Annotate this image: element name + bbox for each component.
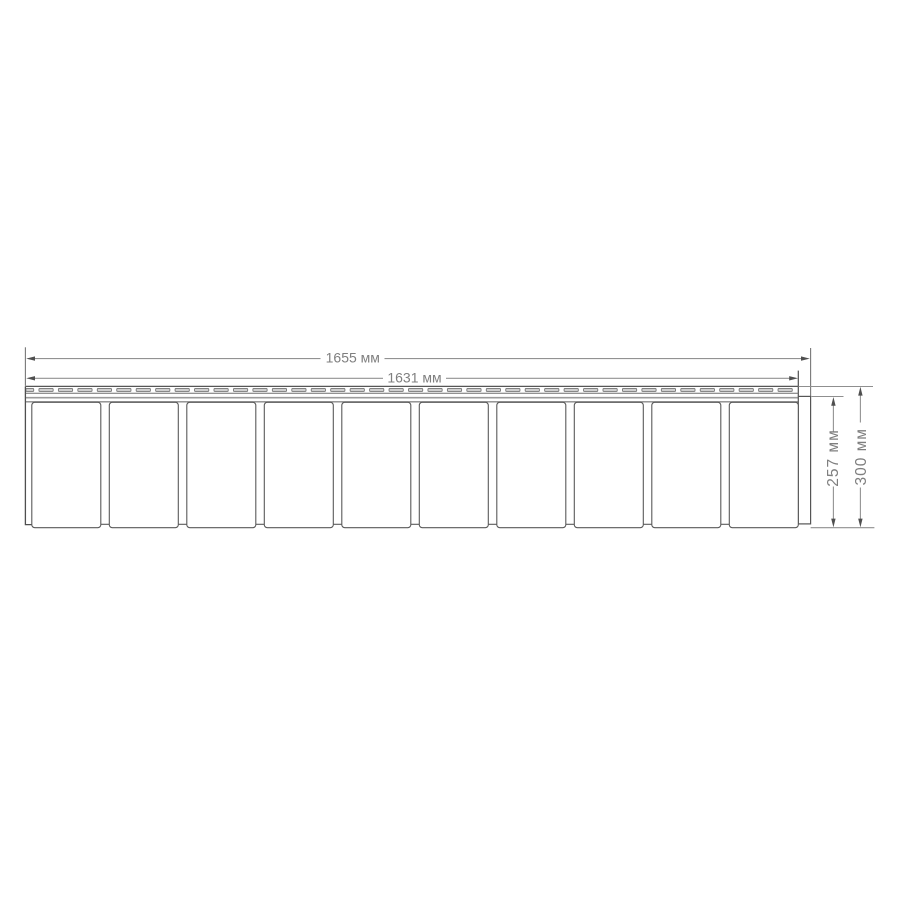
svg-text:300 мм: 300 мм — [853, 428, 870, 485]
svg-text:257 мм: 257 мм — [825, 429, 842, 486]
svg-text:1655 мм: 1655 мм — [326, 350, 380, 366]
svg-text:1631 мм: 1631 мм — [387, 369, 441, 385]
